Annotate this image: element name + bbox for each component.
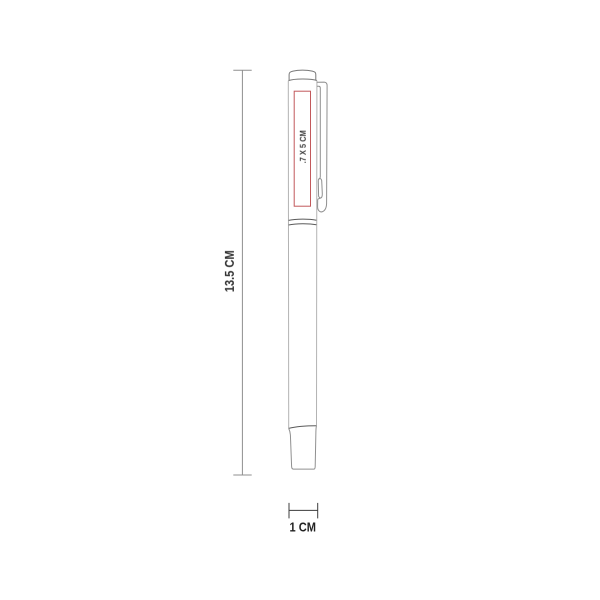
- svg-text:13.5 CM: 13.5 CM: [222, 250, 237, 292]
- svg-text:1 CM: 1 CM: [290, 520, 317, 535]
- svg-text:.7 X 5 CM: .7 X 5 CM: [299, 130, 308, 163]
